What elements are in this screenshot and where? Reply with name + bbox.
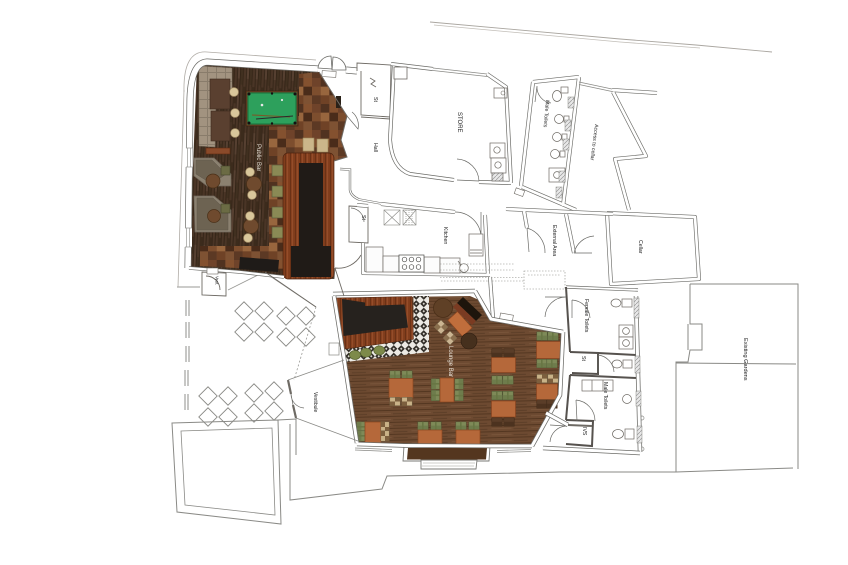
svg-text:St: St xyxy=(580,356,586,361)
svg-text:External Area: External Area xyxy=(551,225,557,256)
svg-text:St: St xyxy=(372,97,378,102)
svg-text:Vestibule: Vestibule xyxy=(312,392,318,413)
svg-text:Female Toilets: Female Toilets xyxy=(583,299,589,333)
svg-text:Lounge Bar: Lounge Bar xyxy=(447,346,453,377)
svg-text:STORE: STORE xyxy=(456,112,462,133)
svg-text:IVS: IVS xyxy=(581,427,587,436)
svg-text:Existing Gardens: Existing Gardens xyxy=(742,338,748,381)
svg-text:Public Bar: Public Bar xyxy=(255,144,261,171)
svg-text:Male Toilets: Male Toilets xyxy=(602,382,608,410)
svg-text:Kitchen: Kitchen xyxy=(442,227,448,244)
svg-text:Hall: Hall xyxy=(372,143,378,152)
svg-text:Vest.: Vest. xyxy=(215,276,220,285)
svg-text:Cellar: Cellar xyxy=(637,240,643,254)
